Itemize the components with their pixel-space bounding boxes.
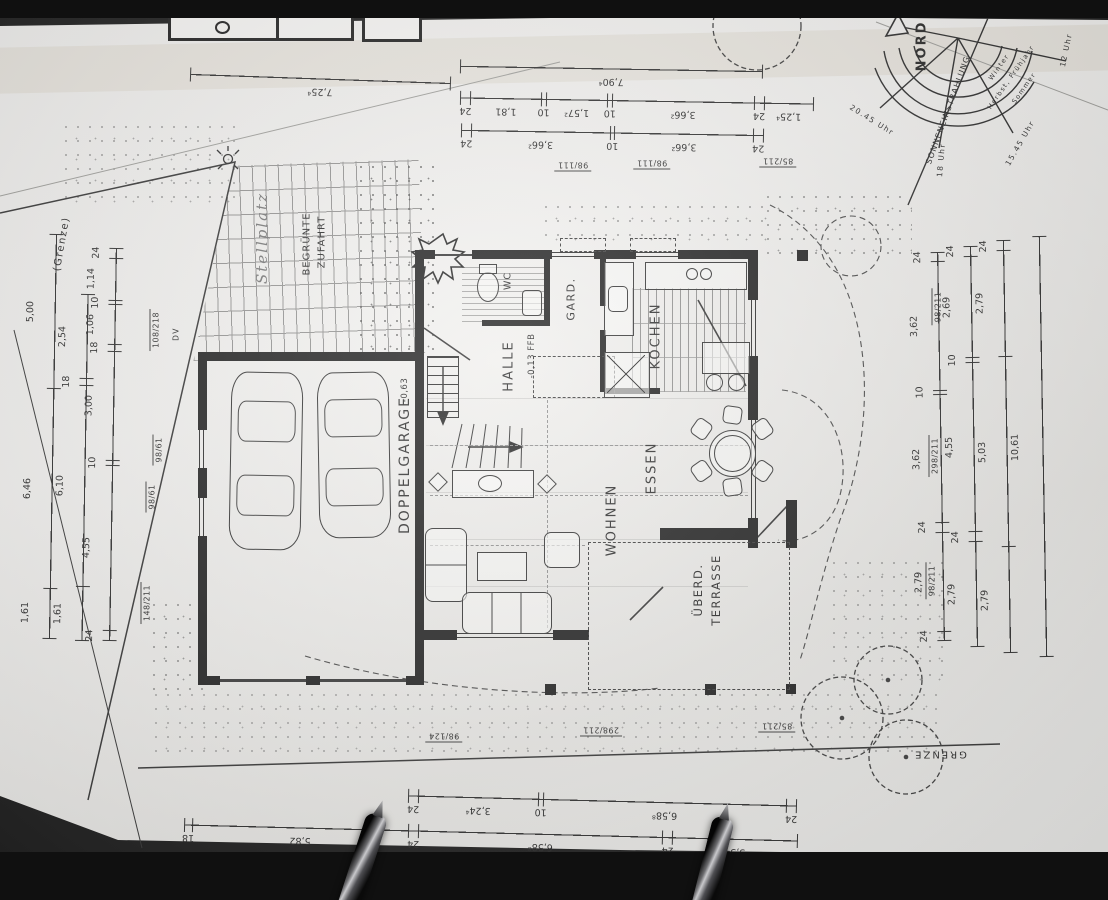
dim-value: 3,24⁴ — [466, 804, 491, 816]
dim-segment: 24 — [409, 789, 419, 803]
dining-table-inner — [714, 435, 751, 472]
wall-garage-left-2 — [198, 468, 207, 498]
opening-label: 98/111 — [634, 159, 671, 170]
sofa-three-seat — [462, 592, 552, 634]
dim-segment: 4,55 — [103, 465, 120, 630]
room-label-wohnen: WOHNEN — [605, 484, 620, 557]
dim-value: 6,46 — [22, 477, 33, 498]
entrance-door — [435, 254, 472, 256]
opening-label: 298/211 — [580, 726, 622, 737]
kitchen-island-x — [607, 355, 645, 393]
dim-segment: 3,66² — [613, 94, 755, 110]
dim-value: 6,58⁸ — [528, 841, 553, 853]
opening-label: 98/211 — [926, 563, 937, 600]
dim-segment: 24 — [109, 248, 123, 258]
dim-segment: 10 — [542, 92, 547, 106]
dim-value: 1,25⁴ — [776, 110, 801, 121]
dim-value: 3,66² — [528, 139, 553, 150]
dim-value: 24 — [407, 838, 419, 849]
car-2 — [317, 371, 392, 538]
dim-value: 6,10 — [54, 475, 65, 496]
top-black-bar — [0, 0, 1108, 18]
dim-value: 7,90⁴ — [599, 76, 624, 87]
car-1 — [228, 371, 303, 550]
wall-house-top-4 — [678, 250, 758, 259]
opening-label: 148/211 — [141, 582, 152, 624]
dim-value: 2,79 — [974, 293, 985, 314]
dim-segment: 3,66² — [615, 126, 754, 142]
dim-value: 10 — [87, 457, 98, 469]
dim-value: 18 — [61, 376, 72, 388]
dim-value: 3,66² — [671, 109, 696, 120]
opening-label: 98/124 — [426, 732, 463, 743]
dim-value: 2,54 — [57, 326, 68, 347]
dim-value: 10 — [534, 806, 546, 817]
car-rear-window — [325, 468, 384, 507]
dim-segment: 24 — [754, 128, 764, 142]
wall-house-top-1 — [415, 250, 435, 259]
dim-value: 3,00 — [83, 395, 94, 416]
dim-value: 1,61 — [20, 602, 31, 623]
wall-house-top-2 — [472, 250, 552, 259]
bar-stool-1 — [706, 374, 723, 391]
dining-chair — [722, 477, 743, 497]
dim-segment: 24 — [996, 240, 1010, 250]
dim-value: 24 — [950, 531, 961, 543]
dim-segment: 10 — [539, 792, 544, 806]
car-rear-window — [236, 475, 295, 517]
dim-value: 3,66² — [671, 141, 696, 152]
garden-post — [797, 250, 808, 261]
dim-segment: 24 — [787, 799, 797, 813]
dim-value: 24 — [912, 251, 923, 263]
room-label-garage: DOPPELGARAGE — [397, 396, 413, 534]
dim-value: 18 — [89, 341, 100, 353]
car-windshield — [237, 401, 296, 443]
stair-upper-flight — [427, 356, 459, 418]
hob-burner-2 — [700, 268, 712, 280]
dim-value: 2,79 — [913, 571, 924, 592]
room-level-halle: -0,13 FFB — [527, 334, 537, 379]
garage-door-2 — [320, 679, 406, 682]
dim-segment: 24 — [964, 246, 978, 256]
driveway-label-2: ZUFAHRT — [317, 216, 328, 269]
sink-icon — [522, 290, 542, 316]
dim-segment: 24 — [931, 252, 945, 262]
opening-label: 85/211 — [759, 722, 796, 733]
dim-value: 4,55 — [944, 437, 955, 458]
dim-segment: 18 — [185, 818, 193, 832]
compass-north-label: NORD — [915, 21, 930, 72]
floorplan-photo: DOPPELGARAGE -0,63 HALLE -0,13 FFB WC GA… — [0, 0, 1108, 900]
dim-value: 24 — [459, 105, 471, 116]
dim-segment: 3,62 — [931, 261, 947, 389]
bottom-black-bar — [0, 852, 1108, 900]
dim-value: 24 — [917, 522, 928, 534]
dim-segment: 3,66² — [472, 124, 611, 140]
opening-label: 298/211 — [929, 435, 940, 477]
opening-label: 98/111 — [555, 161, 592, 172]
wall-wohnen-bottom-1 — [415, 630, 457, 640]
dim-segment: 1,57² — [547, 92, 609, 107]
dim-value: 6,58⁸ — [652, 809, 677, 821]
recess-dashed-2 — [630, 238, 676, 252]
dim-segment: 24 — [937, 630, 951, 640]
dim-value: 10 — [604, 107, 616, 118]
compass-rose — [875, 14, 1066, 205]
dim-value: 18 — [182, 832, 194, 843]
wall-wc-right — [544, 256, 550, 326]
dining-chair — [722, 405, 743, 425]
wall-garage-house-shared — [415, 250, 424, 685]
car-windshield — [324, 399, 383, 438]
wall-garage-left-1 — [198, 352, 207, 430]
dim-segment: 10 — [611, 126, 616, 140]
ceiling-dash-1 — [430, 445, 748, 446]
room-label-kochen: KOCHEN — [649, 303, 664, 370]
dim-value: 2,69 — [941, 297, 952, 318]
dim-segment: 2,79 — [997, 250, 1013, 356]
opening-label: 98/61 — [153, 434, 164, 465]
driveway-label-1: BEGRÜNTE — [302, 212, 313, 275]
dim-value: 1,57² — [564, 107, 589, 118]
dim-value: 5,82 — [289, 835, 310, 847]
dim-value: 5,00 — [25, 301, 36, 322]
wall-garage-top — [198, 352, 424, 361]
dim-value: 10 — [537, 106, 549, 117]
terrace-dashed-outline — [588, 542, 790, 690]
dim-segment: 24 — [935, 522, 949, 532]
dim-value: 1,81 — [495, 106, 516, 117]
dim-value: 3,62 — [911, 448, 922, 469]
dim-value: 24 — [460, 137, 472, 148]
wall-wohnen-bottom-2 — [553, 630, 589, 640]
dim-segment: 2,79 — [1002, 546, 1018, 652]
opening-label: 85/211 — [760, 157, 797, 168]
garage-window-2 — [199, 498, 204, 536]
room-label-wc: WC — [503, 272, 514, 290]
opening-label: 98/211 — [932, 289, 943, 326]
dim-segment: 24 — [663, 831, 673, 845]
wall-garage-bottom-pier — [306, 676, 320, 685]
wall-house-right-1 — [748, 250, 758, 300]
dim-segment: 3,00 — [106, 351, 122, 461]
dim-value: 24 — [945, 246, 956, 258]
wall-wc-bottom — [482, 320, 548, 326]
sofa-two-seat — [425, 528, 467, 602]
room-label-gard: GARD. — [565, 277, 578, 320]
dim-segment: 2,79 — [935, 531, 951, 630]
recess-dashed-1 — [560, 238, 606, 252]
wall-terrace-right-stub — [786, 500, 797, 548]
handwritten-stellplatz: Stellplatz — [253, 192, 271, 284]
kitchen-sink — [608, 286, 628, 312]
room-label-essen: ESSEN — [645, 442, 660, 495]
dim-value: 10 — [606, 140, 618, 151]
dim-value: 24 — [978, 240, 989, 252]
dim-value: 10 — [90, 296, 101, 308]
armchair — [544, 532, 580, 568]
opening-label: 108/218 — [150, 309, 161, 351]
dv-label: DV — [172, 327, 181, 341]
dim-segment: 24 — [409, 824, 419, 838]
wall-garage-bottom-1 — [198, 676, 220, 685]
dim-segment: 5,00 — [47, 234, 64, 389]
room-label-terrasse-2: TERRASSE — [709, 554, 723, 626]
dim-value: 2,79 — [946, 584, 957, 605]
coffee-table — [477, 552, 527, 581]
garage-door-1 — [220, 679, 306, 682]
dim-value: 24 — [752, 142, 764, 153]
dim-segment: 24 — [755, 96, 765, 110]
dim-value: 1,61 — [52, 602, 63, 623]
house-top-window-1 — [552, 252, 594, 257]
garage-window-1 — [199, 430, 204, 468]
dim-segment: 1,14 — [109, 258, 124, 300]
dim-value: 5,03 — [977, 441, 988, 462]
dim-segment: 24 — [103, 630, 117, 640]
dim-value: 24 — [785, 813, 797, 824]
dim-segment: 24 — [462, 123, 472, 137]
dim-segment: 24 — [968, 531, 982, 541]
toilet-tank — [479, 264, 497, 274]
dim-segment: 1,81 — [471, 91, 542, 106]
dim-value: 10,61 — [1010, 433, 1021, 460]
room-label-terrasse-1: ÜBERD. — [691, 563, 705, 616]
dim-value: 24 — [753, 110, 765, 121]
dim-value: 24 — [91, 247, 102, 259]
dim-value: 24 — [84, 629, 95, 641]
kitchen-bar-table — [702, 342, 750, 374]
bar-stool-2 — [728, 374, 745, 391]
dim-value: 1,14 — [86, 268, 97, 289]
dim-value: 3,62 — [909, 316, 920, 337]
dim-segment: 24 — [461, 91, 471, 105]
wall-terrace-top — [660, 528, 756, 540]
dim-value: 24 — [407, 803, 419, 814]
dim-value: 24 — [919, 630, 930, 642]
dim-segment: 1,25⁴ — [765, 96, 814, 111]
dim-value: 1,06 — [85, 313, 96, 334]
dim-value: 2,79 — [979, 589, 990, 610]
dim-value: 10 — [947, 354, 958, 366]
dim-value: 7,25⁴ — [307, 86, 332, 98]
dim-segment: 10 — [608, 93, 613, 107]
kitchen-right-window — [751, 300, 756, 356]
opening-label: 98/61 — [146, 481, 157, 512]
toilet-icon — [477, 272, 499, 302]
wall-garage-left-3 — [198, 536, 207, 685]
grenze-bottom-label: GRENZE — [913, 749, 967, 760]
sideboard-bowl — [478, 475, 502, 492]
hob-burner-1 — [686, 268, 698, 280]
room-level-garage: -0,63 — [400, 378, 410, 403]
dim-value: 4,55 — [81, 537, 92, 558]
halle-dashed-rect — [533, 356, 615, 398]
terrace-post-1 — [545, 684, 556, 695]
dim-value: 10 — [914, 386, 925, 398]
house-top-window-2 — [636, 252, 678, 257]
dim-segment: 1,06 — [108, 304, 123, 344]
room-label-halle: HALLE — [502, 340, 517, 391]
